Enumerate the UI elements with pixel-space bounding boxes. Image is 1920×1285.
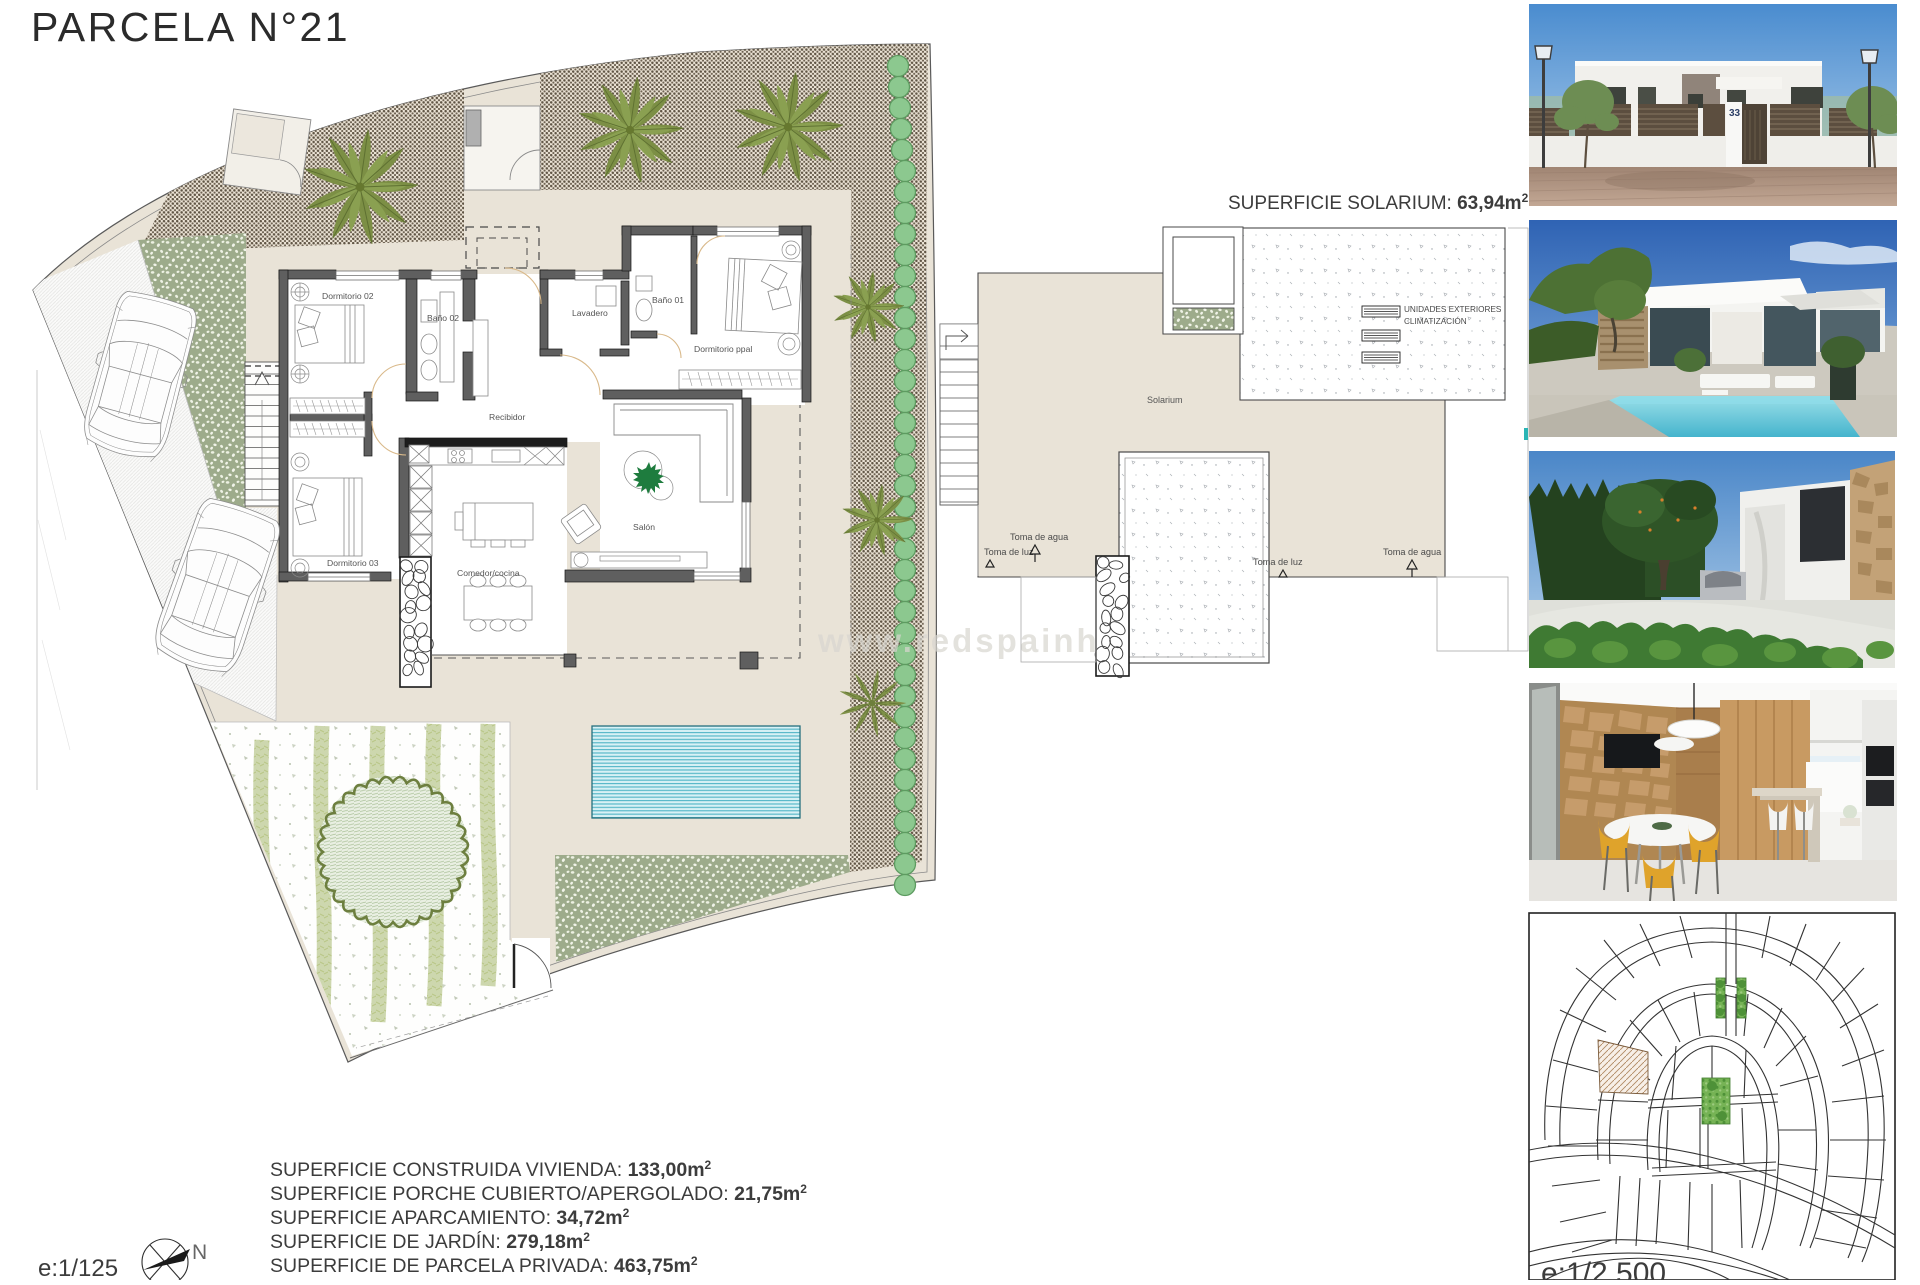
svg-text:N: N (192, 1241, 207, 1264)
svg-text:SUPERFICIE APARCAMIENTO: 34,72: SUPERFICIE APARCAMIENTO: 34,72m2 (270, 1206, 630, 1229)
svg-text:Toma de luz: Toma de luz (1253, 557, 1303, 567)
svg-text:e:1/125: e:1/125 (38, 1255, 118, 1280)
svg-text:Solarium: Solarium (1147, 395, 1183, 405)
svg-text:SUPERFICIE CONSTRUIDA VIVIENDA: SUPERFICIE CONSTRUIDA VIVIENDA: 133,00m2 (270, 1158, 712, 1181)
svg-text:Dormitorio ppal: Dormitorio ppal (694, 344, 752, 354)
svg-text:Salón: Salón (633, 522, 655, 532)
svg-text:UNIDADES EXTERIORES: UNIDADES EXTERIORES (1404, 305, 1502, 314)
svg-text:Toma de luz: Toma de luz (984, 547, 1034, 557)
svg-text:SUPERFICIE DE PARCELA PRIVADA:: SUPERFICIE DE PARCELA PRIVADA: 463,75m2 (270, 1254, 698, 1277)
svg-text:SUPERFICIE SOLARIUM: 63,94m2: SUPERFICIE SOLARIUM: 63,94m2 (1228, 191, 1529, 214)
svg-text:33: 33 (1729, 108, 1741, 119)
svg-text:CLIMATIZACIÓN: CLIMATIZACIÓN (1404, 316, 1467, 326)
svg-text:Recibidor: Recibidor (489, 412, 525, 422)
svg-text:Lavadero: Lavadero (572, 308, 608, 318)
svg-text:Dormitorio 03: Dormitorio 03 (327, 558, 379, 568)
svg-text:Baño 01: Baño 01 (652, 295, 684, 305)
svg-text:Toma de agua: Toma de agua (1383, 547, 1442, 557)
svg-text:Dormitorio 02: Dormitorio 02 (322, 291, 374, 301)
svg-text:SUPERFICIE PORCHE CUBIERTO/APE: SUPERFICIE PORCHE CUBIERTO/APERGOLADO: 2… (270, 1182, 807, 1205)
svg-text:Comedor/cocina: Comedor/cocina (457, 568, 520, 578)
svg-text:Baño 02: Baño 02 (427, 313, 459, 323)
svg-text:e:1/2.500: e:1/2.500 (1541, 1257, 1666, 1280)
svg-text:PARCELA N°21: PARCELA N°21 (31, 4, 350, 50)
svg-text:Toma de agua: Toma de agua (1010, 532, 1069, 542)
svg-text:SUPERFICIE DE JARDÍN: 279,18m2: SUPERFICIE DE JARDÍN: 279,18m2 (270, 1230, 590, 1253)
